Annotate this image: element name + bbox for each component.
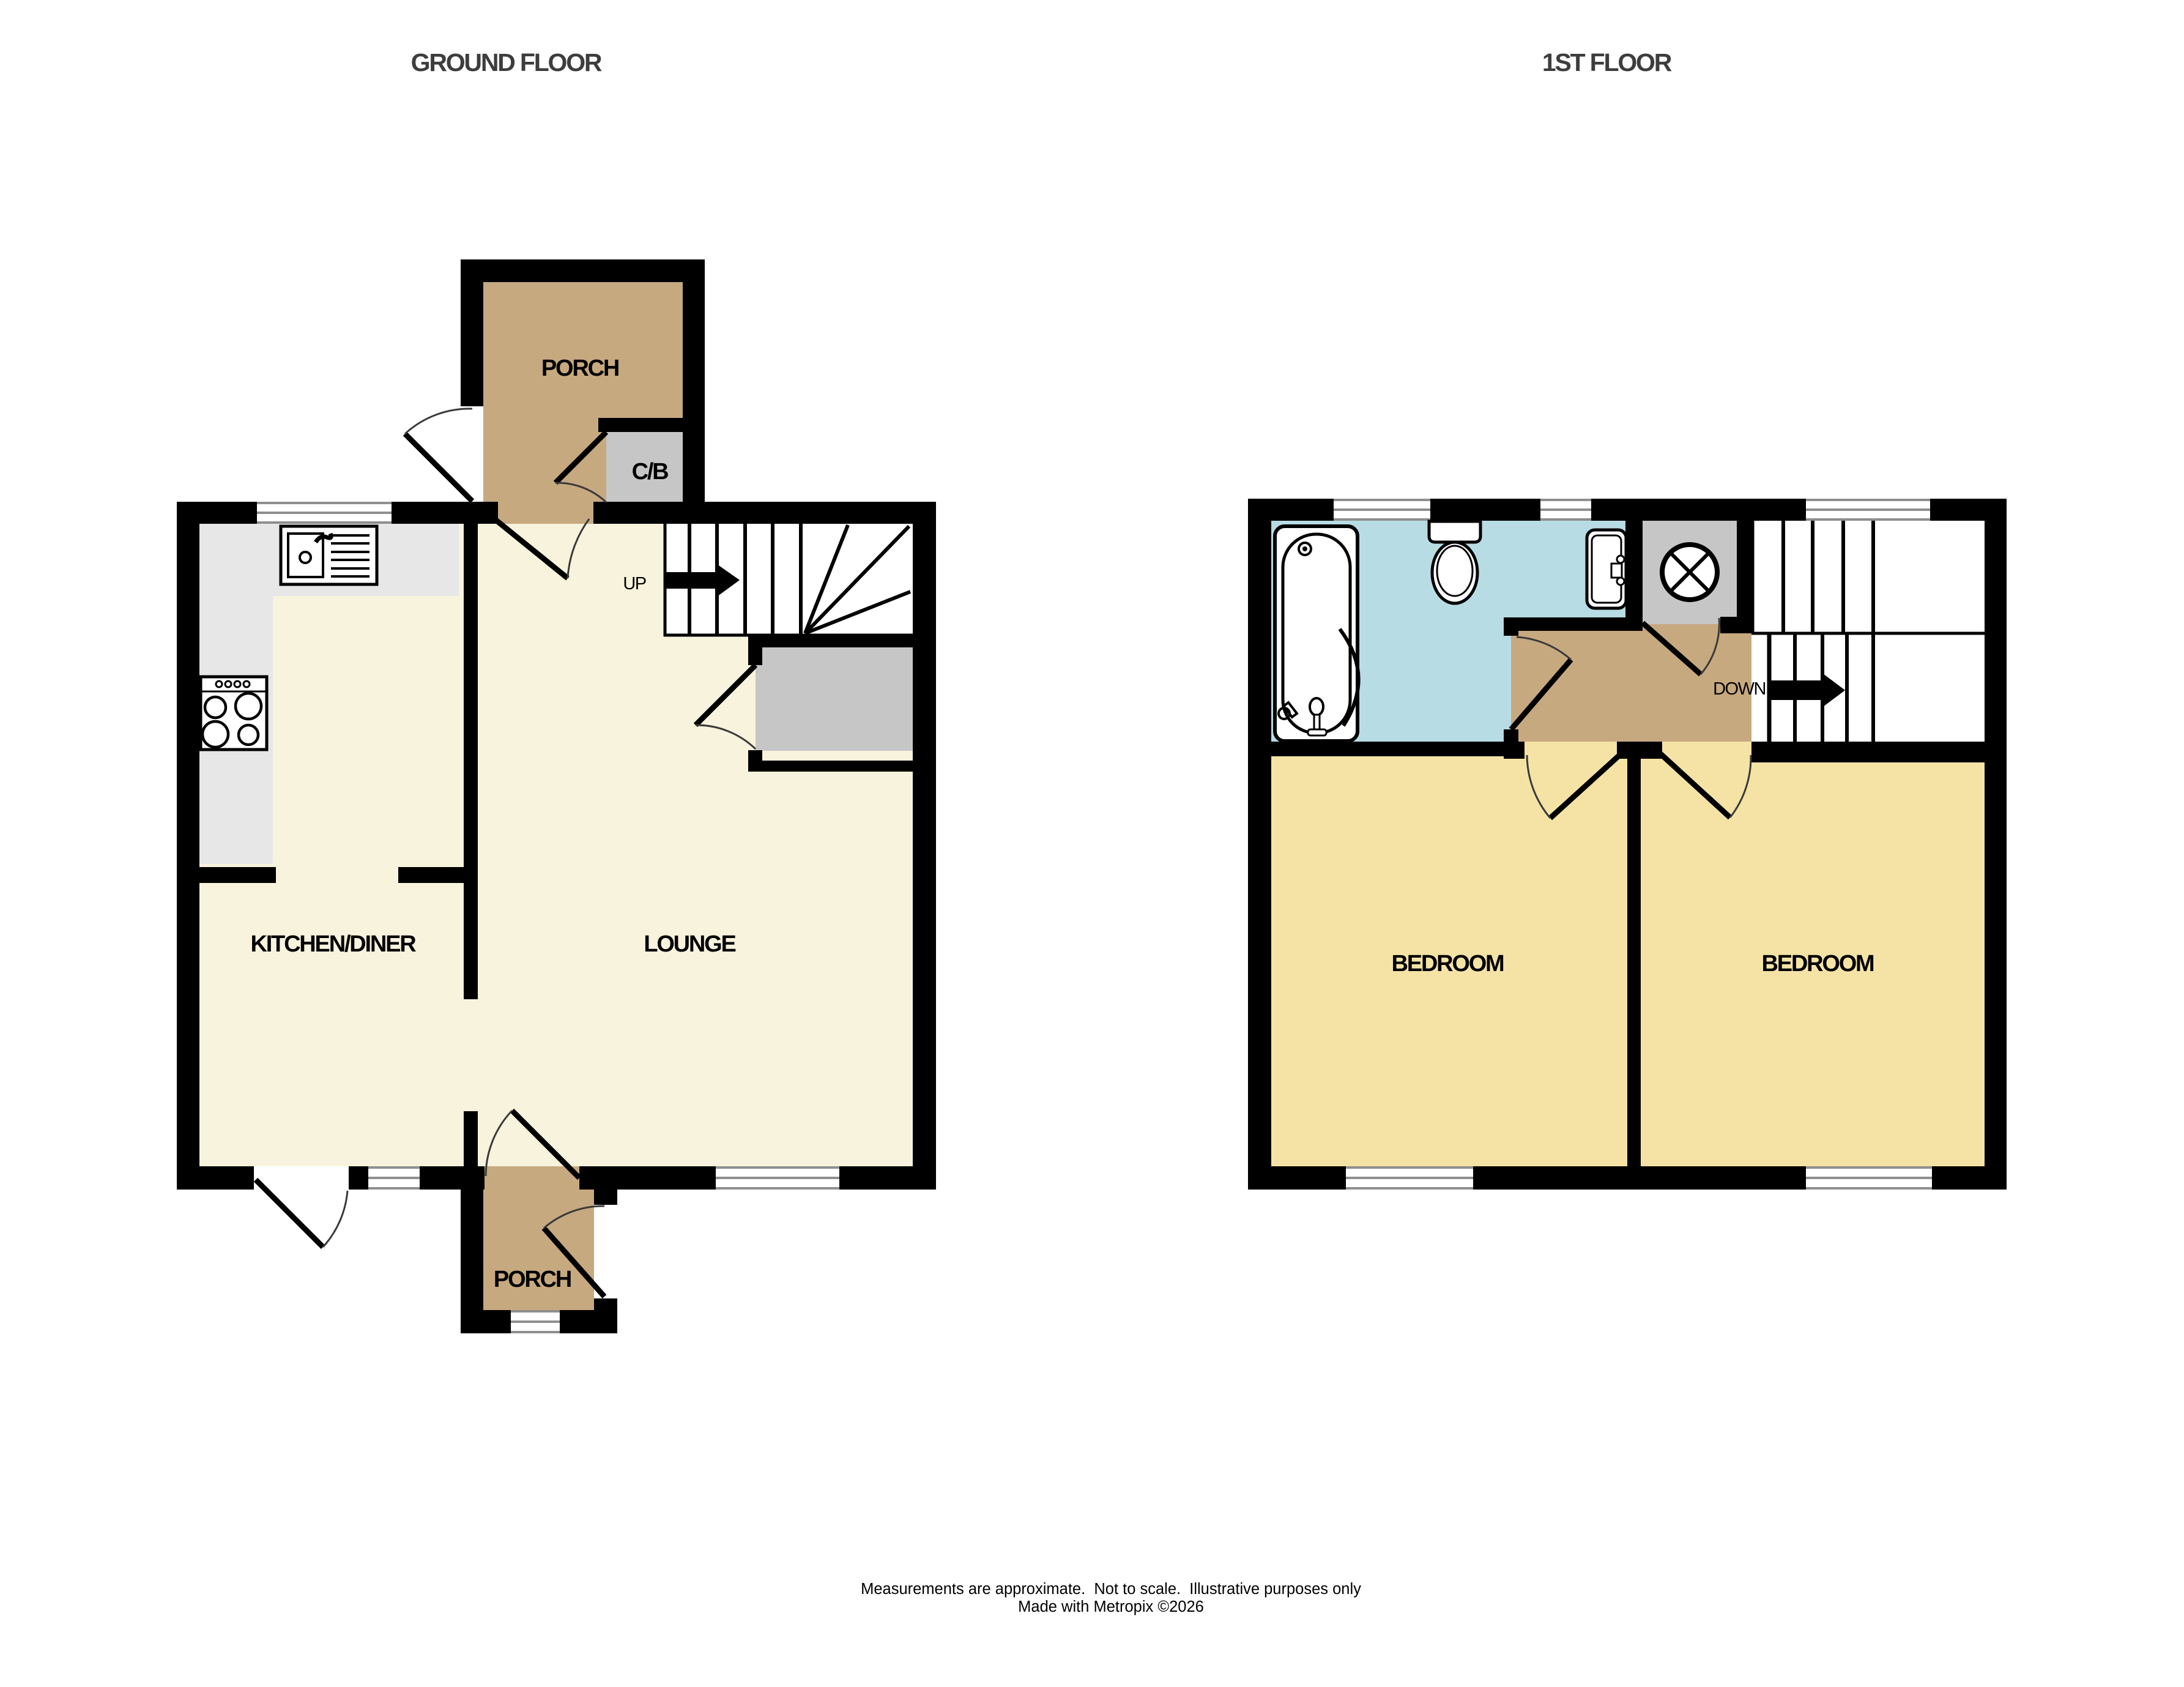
svg-text:BEDROOM: BEDROOM xyxy=(1761,951,1874,977)
svg-text:1ST FLOOR: 1ST FLOOR xyxy=(1542,48,1672,76)
svg-text:DOWN: DOWN xyxy=(1713,679,1766,699)
svg-text:C/B: C/B xyxy=(632,459,669,485)
svg-text:PORCH: PORCH xyxy=(494,1267,571,1292)
svg-text:BEDROOM: BEDROOM xyxy=(1391,951,1504,977)
svg-text:UP: UP xyxy=(623,574,645,594)
svg-text:GROUND FLOOR: GROUND FLOOR xyxy=(411,48,602,76)
svg-text:Measurements are approximate.: Measurements are approximate. Not to sca… xyxy=(861,1581,1361,1598)
svg-text:KITCHEN/DINER: KITCHEN/DINER xyxy=(250,931,416,957)
svg-text:LOUNGE: LOUNGE xyxy=(644,931,735,957)
svg-text:Made with Metropix ©2026: Made with Metropix ©2026 xyxy=(1018,1598,1204,1615)
svg-text:PORCH: PORCH xyxy=(541,356,618,381)
